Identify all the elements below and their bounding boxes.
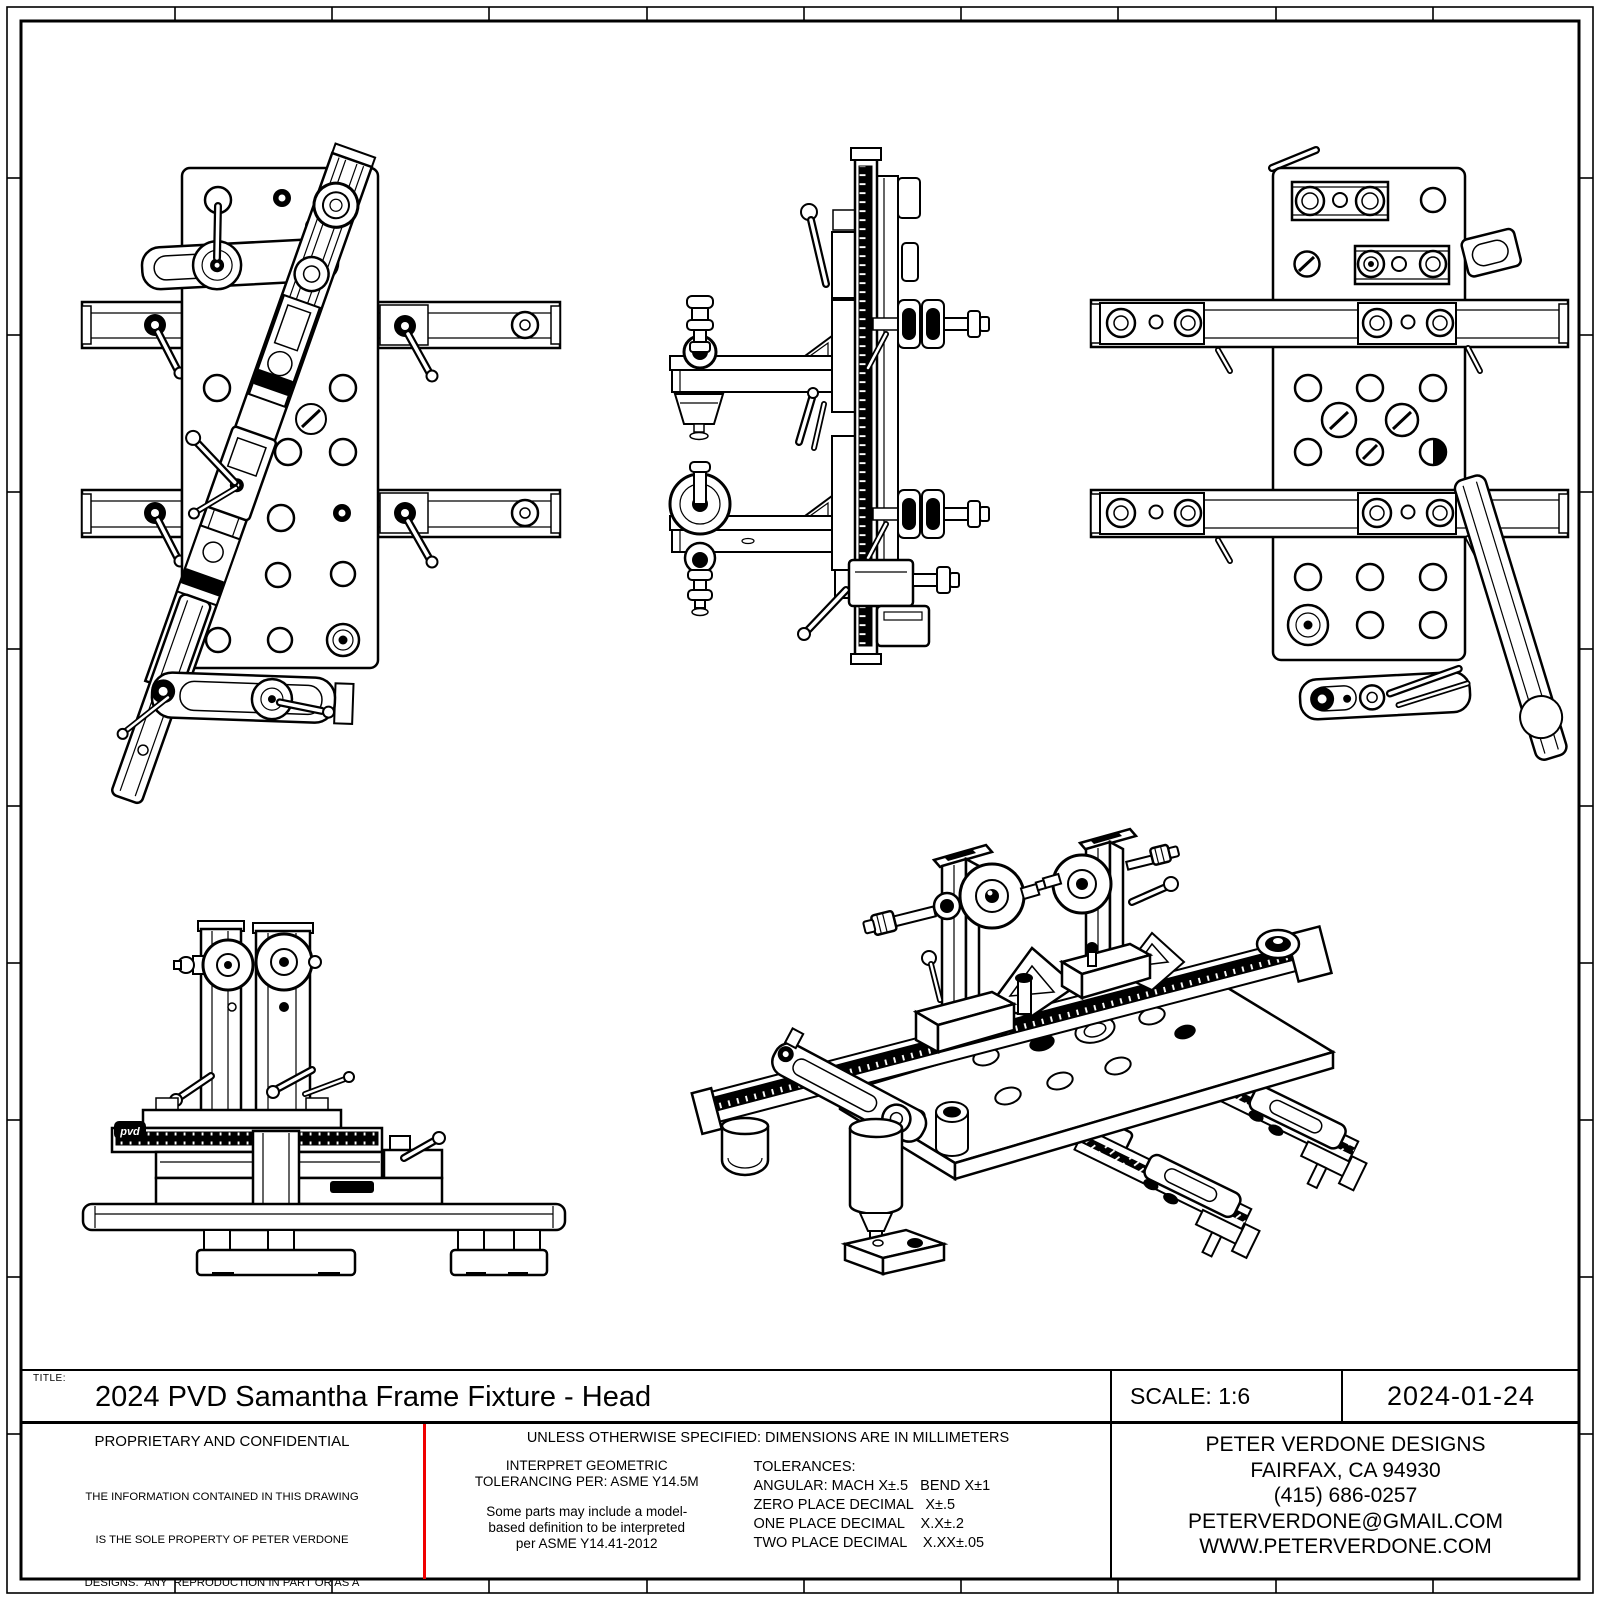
rail-right-lower [378, 490, 560, 568]
back-slot-plate-2 [1355, 246, 1449, 284]
rail-left-upper [82, 302, 186, 379]
proprietary-body: THE INFORMATION CONTAINED IN THIS DRAWIN… [21, 1462, 423, 1600]
elev-feet [197, 1230, 547, 1276]
drawing-sheet: pvd [0, 0, 1600, 1600]
elev-base-rail [83, 1204, 565, 1230]
company-email: PETERVERDONE@GMAIL.COM [1112, 1509, 1579, 1535]
tolerances-heading: TOLERANCES: [753, 1458, 1110, 1477]
rail-right-upper [378, 302, 560, 382]
elev-right-riser [384, 1132, 445, 1178]
interpret-column: INTERPRET GEOMETRIC TOLERANCING PER: ASM… [426, 1458, 747, 1553]
title-block-band: TITLE: 2024 PVD Samantha Frame Fixture -… [21, 1369, 1579, 1421]
unless-otherwise-specified: UNLESS OTHERWISE SPECIFIED: DIMENSIONS A… [426, 1430, 1110, 1446]
proprietary-cell: PROPRIETARY AND CONFIDENTIAL THE INFORMA… [21, 1424, 423, 1579]
drawing-title: 2024 PVD Samantha Frame Fixture - Head [95, 1381, 651, 1414]
back-bottom-clamp-bar [1299, 668, 1471, 720]
elev-disc-left [174, 940, 253, 990]
rail-left-lower [82, 490, 186, 567]
title-label: TITLE: [33, 1373, 66, 1384]
adjuster-knob [1125, 842, 1181, 871]
tolerances-column: TOLERANCES: ANGULAR: MACH X±.5 BEND X±1 … [747, 1458, 1110, 1553]
company-cell: PETER VERDONE DESIGNS FAIRFAX, CA 94930 … [1110, 1424, 1579, 1579]
elev-column [253, 1131, 299, 1206]
cone-holder-upper [675, 394, 723, 424]
company-phone: (415) 686-0257 [1112, 1483, 1579, 1509]
zone-ticks-top [175, 7, 1433, 21]
iso-tower-left [862, 845, 1039, 1052]
side-bottom-assembly [798, 560, 959, 646]
specifications-cell: UNLESS OTHERWISE SPECIFIED: DIMENSIONS A… [423, 1424, 1110, 1579]
drawing-date: 2024-01-24 [1387, 1381, 1535, 1412]
company-name: PETER VERDONE DESIGNS [1112, 1432, 1579, 1458]
iso-front-tube [722, 1118, 768, 1175]
scale-cell: SCALE: 1:6 [1110, 1371, 1341, 1421]
back-slot-plate-1 [1292, 182, 1388, 220]
view-side [670, 148, 989, 664]
company-city: FAIRFAX, CA 94930 [1112, 1458, 1579, 1484]
elev-platform [143, 1110, 341, 1128]
side-arm-lower [670, 462, 832, 616]
view-back [1091, 150, 1573, 763]
view-front [65, 129, 560, 807]
drawing-canvas: pvd [0, 0, 1600, 1600]
view-isometric [692, 829, 1384, 1274]
title-cell: TITLE: 2024 PVD Samantha Frame Fixture -… [21, 1371, 1110, 1421]
title-block-lower: PROPRIETARY AND CONFIDENTIAL THE INFORMA… [21, 1421, 1579, 1579]
view-elevation: pvd [83, 921, 565, 1276]
company-website: WWW.PETERVERDONE.COM [1112, 1534, 1579, 1560]
zone-ticks-right [1579, 178, 1593, 1434]
scale-value: SCALE: 1:6 [1112, 1383, 1250, 1410]
micrometer-knob [862, 901, 937, 938]
proprietary-heading: PROPRIETARY AND CONFIDENTIAL [21, 1433, 423, 1450]
back-tab [1460, 228, 1522, 278]
date-cell: 2024-01-24 [1341, 1371, 1579, 1421]
zone-ticks-left [7, 178, 21, 1434]
pvd-logo: pvd [119, 1126, 140, 1138]
